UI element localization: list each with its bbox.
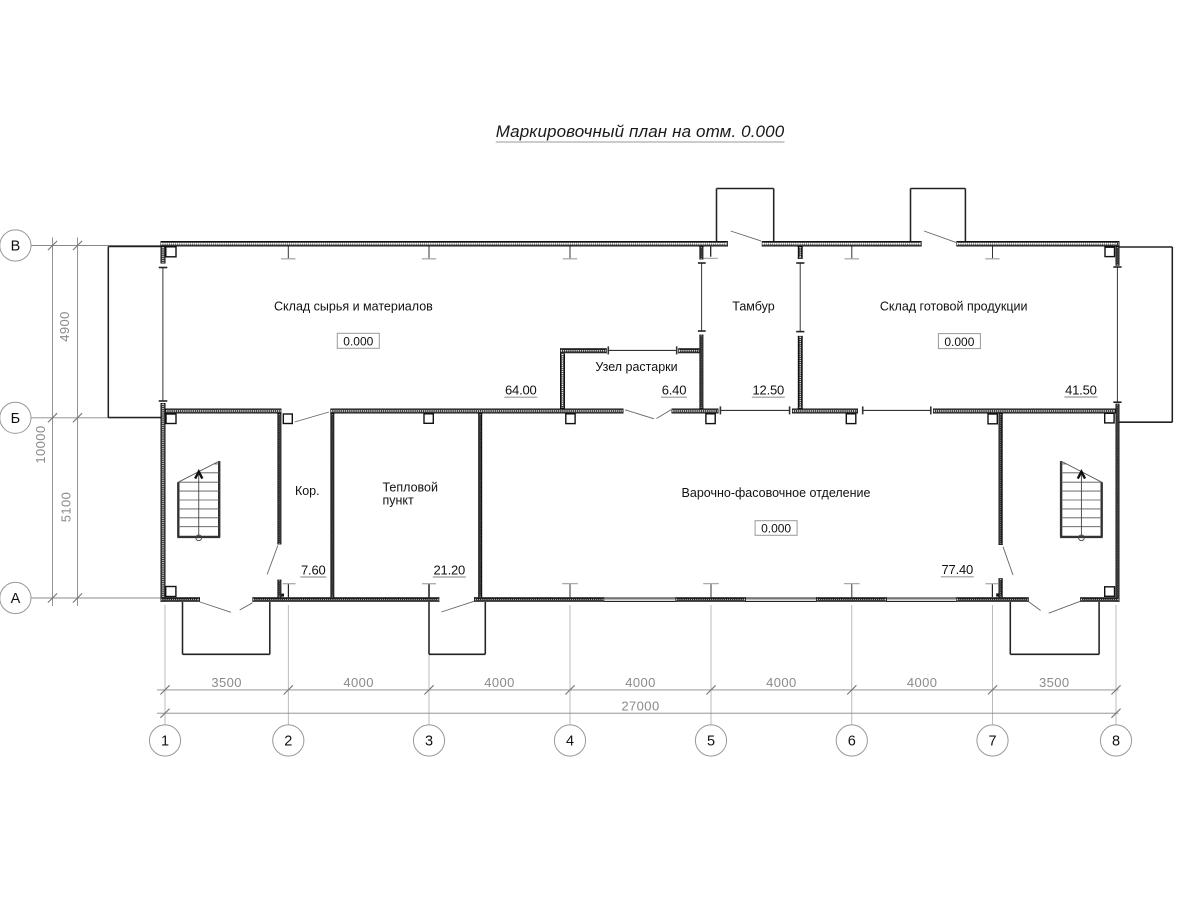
svg-text:Кор.: Кор. [295,484,320,498]
svg-text:3500: 3500 [211,675,242,690]
svg-text:77.40: 77.40 [942,562,974,577]
svg-text:7: 7 [988,734,996,750]
svg-text:21.20: 21.20 [434,562,466,577]
svg-text:6.40: 6.40 [662,383,687,398]
svg-text:А: А [11,591,21,607]
svg-text:6: 6 [848,734,856,750]
svg-text:3500: 3500 [1039,675,1070,690]
svg-text:3: 3 [425,734,433,750]
svg-text:Маркировочный план на отм. 0.0: Маркировочный план на отм. 0.000 [496,122,785,141]
svg-text:Тепловой: Тепловой [383,481,438,495]
svg-text:Склад сырья и материалов: Склад сырья и материалов [274,299,433,313]
svg-text:64.00: 64.00 [505,383,537,398]
svg-text:Тамбур: Тамбур [732,299,774,313]
svg-text:41.50: 41.50 [1065,382,1097,397]
svg-text:Б: Б [11,411,21,427]
svg-text:12.50: 12.50 [753,383,785,398]
svg-text:7.60: 7.60 [301,562,326,577]
svg-text:0.000: 0.000 [343,335,373,349]
svg-text:4000: 4000 [484,675,515,690]
svg-text:8: 8 [1112,734,1120,750]
svg-text:27000: 27000 [621,698,659,713]
svg-text:0.000: 0.000 [944,335,974,349]
svg-text:4000: 4000 [625,675,656,690]
svg-text:4: 4 [566,734,574,750]
svg-text:2: 2 [284,734,292,750]
svg-text:пункт: пункт [383,494,415,508]
svg-text:Варочно-фасовочное отделение: Варочно-фасовочное отделение [682,486,871,500]
svg-text:4900: 4900 [57,311,72,342]
svg-text:Узел растарки: Узел растарки [595,360,677,374]
svg-text:10000: 10000 [33,425,48,463]
svg-text:В: В [11,239,21,255]
svg-text:4000: 4000 [343,675,374,690]
svg-text:5100: 5100 [59,492,74,523]
svg-text:4000: 4000 [766,675,797,690]
svg-text:4000: 4000 [907,675,938,690]
svg-text:Склад готовой продукции: Склад готовой продукции [880,299,1028,313]
svg-text:5: 5 [707,734,715,750]
svg-text:1: 1 [161,734,169,750]
svg-text:0.000: 0.000 [761,522,791,536]
